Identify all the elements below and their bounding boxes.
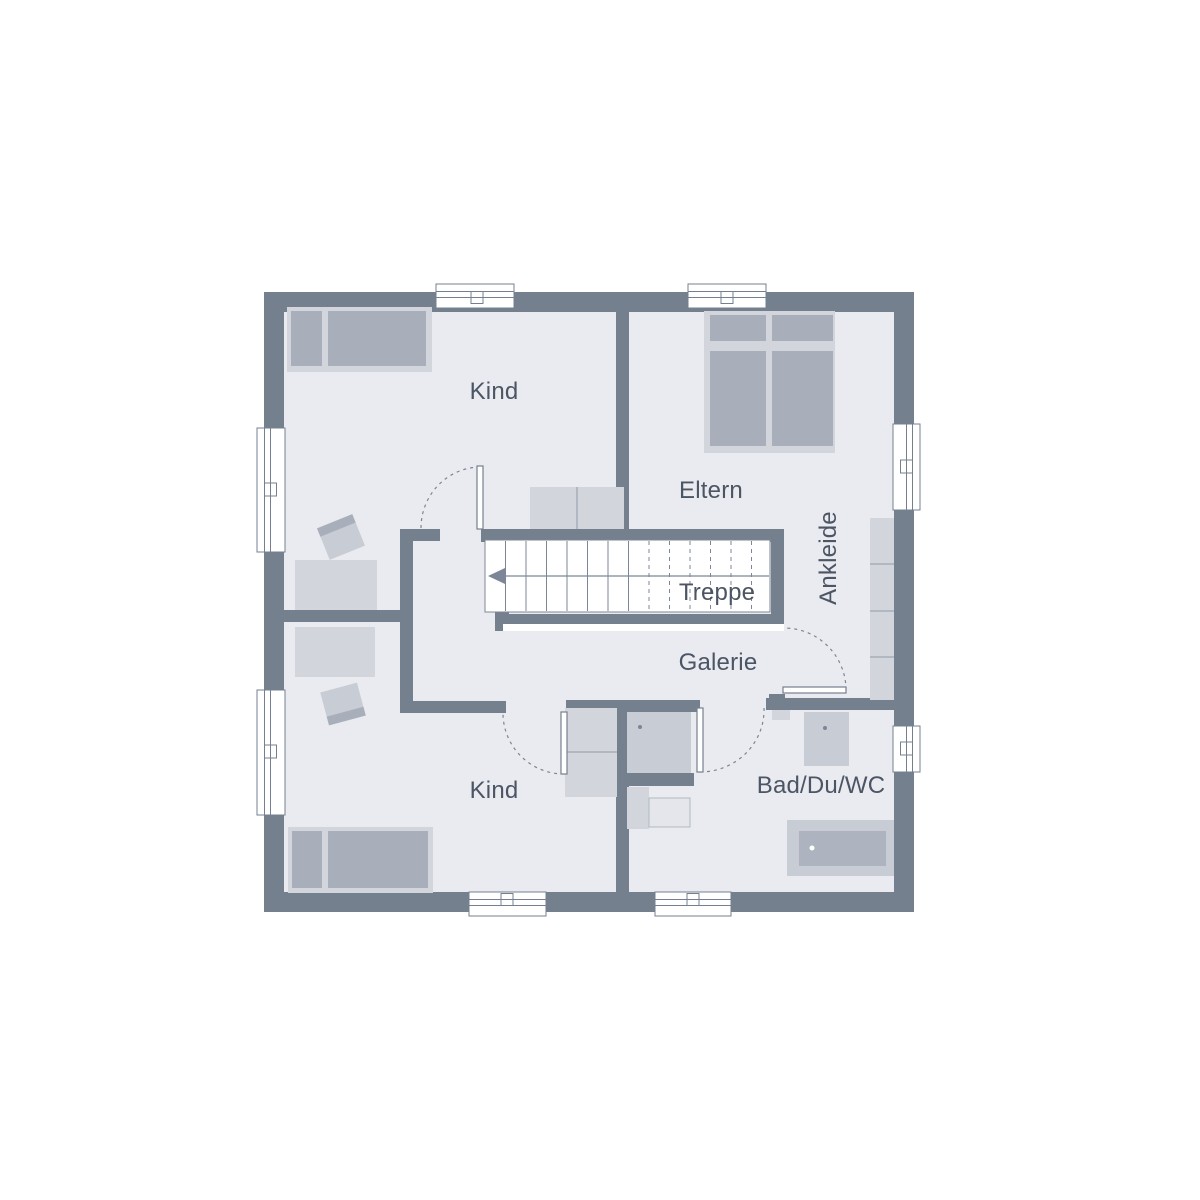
washbasin-tap [823,726,827,730]
room-label-treppe: Treppe [679,579,755,606]
bath-door-leaf [697,708,703,772]
window-frame [436,284,514,308]
shower [627,712,691,773]
wall-ankleide-stub [769,694,785,702]
kind-bottom-door-leaf [561,712,567,774]
wall-shower-bottom [616,773,694,786]
room-label-bad: Bad/Du/WC [757,772,886,799]
double-bed-pillow-left [710,315,766,341]
wardrobe-divider [870,656,894,658]
wardrobe-divider [870,610,894,612]
shower-drain [638,725,642,729]
wall-hall-stub [400,529,440,541]
room-label-kind-top: Kind [470,378,519,405]
bed-pillow [292,831,322,888]
outer-wall-bottom [264,892,914,912]
window-icon [257,428,285,552]
window-frame [655,892,731,916]
outer-wall-left [264,292,284,912]
stair-void-gap [503,624,784,631]
window-icon [469,892,546,916]
washbasin [804,712,849,766]
desk [295,560,377,610]
room-label-eltern: Eltern [679,477,743,504]
window-icon [688,284,766,308]
wc-bowl [649,798,690,827]
double-bed-mattress-right [772,351,833,446]
window-icon [436,284,514,308]
double-bed-mattress-left [710,351,766,446]
double-bed-pillow-right [772,315,833,341]
desk [295,627,375,677]
window-frame [469,892,546,916]
floor-plan: Kind Eltern Ankleide Treppe Galerie Kind… [0,0,1200,1200]
wardrobe [870,518,894,700]
bed-mattress [328,311,426,366]
window-frame [688,284,766,308]
wc-cistern [627,787,649,829]
room-label-ankleide: Ankleide [815,511,842,605]
window-icon [893,726,920,772]
bed-pillow [291,311,322,366]
kind-top-door-leaf [477,466,483,529]
wall-kind-bottom-top [400,701,506,713]
outer-wall-right [894,292,914,912]
wardrobe-divider [565,751,617,753]
bed-mattress [328,831,428,888]
room-label-galerie: Galerie [679,649,758,676]
wardrobe-divider [870,563,894,565]
window-icon [655,892,731,916]
ankleide-door-leaf [783,687,846,693]
window-icon [893,424,920,510]
floor-plan-page: Kind Eltern Ankleide Treppe Galerie Kind… [0,0,1200,1200]
wall-between-kind-rooms [264,610,413,622]
dresser-divider [576,487,578,529]
window-icon [257,690,285,815]
radiator [772,710,790,720]
railing-band [497,614,784,624]
room-label-kind-bottom: Kind [470,777,519,804]
bathtub-tap [810,846,815,851]
